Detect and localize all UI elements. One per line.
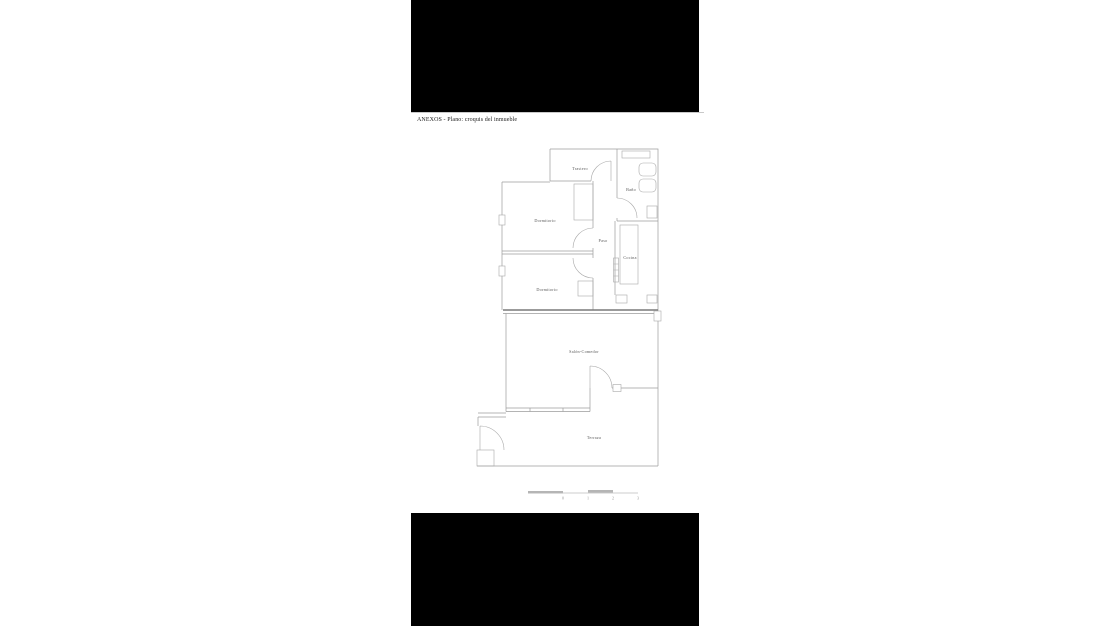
windows [499, 215, 661, 392]
kitchen-wall-stub-right [647, 295, 657, 303]
door-trastero [591, 161, 611, 181]
top-letterbox [411, 0, 699, 112]
scale-tick-1: 1 [587, 497, 589, 501]
room-label-trastero: Trastero [572, 166, 588, 171]
window-left-2 [499, 266, 505, 276]
room-label-cocina: Cocina [623, 255, 636, 260]
scale-bar-segment-1 [528, 491, 563, 493]
room-label-bano: Baño [626, 187, 636, 192]
window-right [654, 311, 661, 321]
scale-bar-segment-2 [588, 490, 613, 493]
door-living-to-terrace [590, 366, 612, 388]
document-page: ANEXOS - Plano: croquis del inmueble [0, 0, 1110, 626]
bath-sink-2 [639, 179, 656, 192]
outer-and-partition-walls [477, 149, 658, 466]
kitchen-wall-stub-left [616, 295, 627, 303]
scale-tick-2: 2 [612, 497, 614, 501]
page-edge-line [411, 112, 704, 113]
room-label-terraza: Terraza [587, 435, 601, 440]
room-label-dormitorio-2: Dormitorio [536, 287, 557, 292]
closet-bedroom-2 [578, 281, 593, 296]
window-terrace-wall [613, 385, 621, 392]
bath-toilet [647, 206, 657, 218]
door-bedroom-1 [573, 228, 593, 248]
wardrobe [574, 184, 593, 220]
bottom-letterbox [411, 513, 699, 626]
room-label-dormitorio-1: Dormitorio [534, 218, 555, 223]
floorplan-walls [477, 149, 658, 466]
room-label-salon-comedor: Salón-Comedor [569, 349, 599, 354]
bath-shelf [622, 151, 650, 158]
floorplan-drawing: Trastero Baño Dormitorio Paso Cocina Dor… [440, 140, 680, 510]
scale-tick-0: 0 [562, 497, 564, 501]
door-arcs [480, 161, 637, 450]
page-title: ANEXOS - Plano: croquis del inmueble [417, 116, 517, 125]
entry-pillar [477, 450, 494, 466]
scale-bar: 0 1 2 3 [528, 490, 639, 501]
scale-tick-3: 3 [637, 497, 639, 501]
door-bathroom [617, 198, 637, 218]
bath-sink-1 [639, 163, 656, 176]
door-bedroom-2 [573, 258, 593, 278]
room-label-paso: Paso [599, 238, 608, 243]
window-left-1 [499, 215, 505, 225]
fixtures [477, 151, 657, 466]
kitchen-hatch-strip [614, 258, 619, 282]
door-terrace-entry [480, 426, 504, 450]
